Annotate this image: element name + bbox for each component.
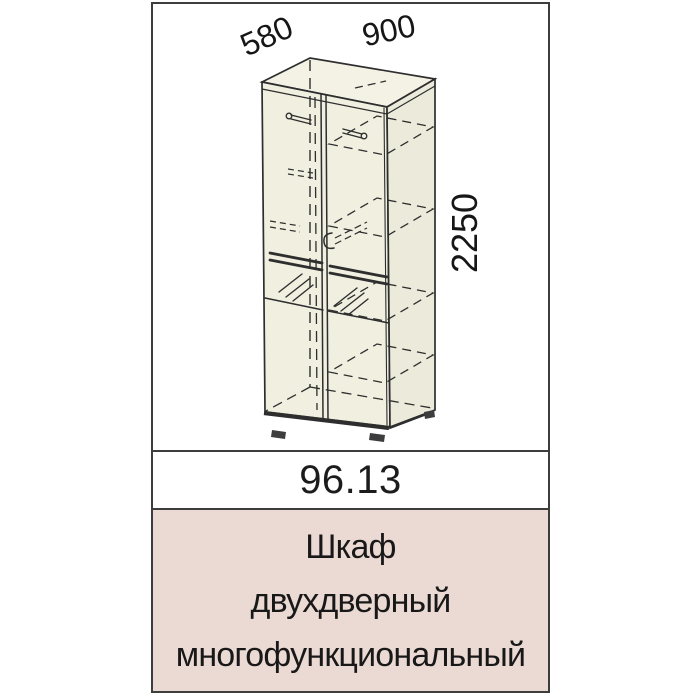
product-name-panel: Шкаф двухдверный многофункциональный — [151, 510, 550, 693]
dimension-width-label: 900 — [359, 7, 419, 53]
product-name-line-1: Шкаф — [305, 520, 395, 574]
catalog-sheet: 580 900 2250 96.13 Шкаф двухдверный мног… — [0, 0, 700, 700]
dimension-depth-label: 580 — [235, 9, 298, 64]
foot-left — [271, 430, 286, 439]
cabinet-side-face — [387, 79, 435, 427]
product-name-line-3: многофункциональный — [176, 628, 526, 682]
drawing-panel: 580 900 2250 — [151, 2, 550, 452]
model-code: 96.13 — [299, 458, 402, 503]
cabinet-drawing: 580 900 2250 — [153, 4, 548, 450]
product-card: 580 900 2250 96.13 Шкаф двухдверный мног… — [151, 2, 550, 693]
model-code-panel: 96.13 — [151, 452, 550, 510]
foot-right — [369, 433, 385, 442]
dimension-height-label: 2250 — [444, 193, 485, 273]
product-name-line-2: двухдверный — [251, 574, 451, 628]
